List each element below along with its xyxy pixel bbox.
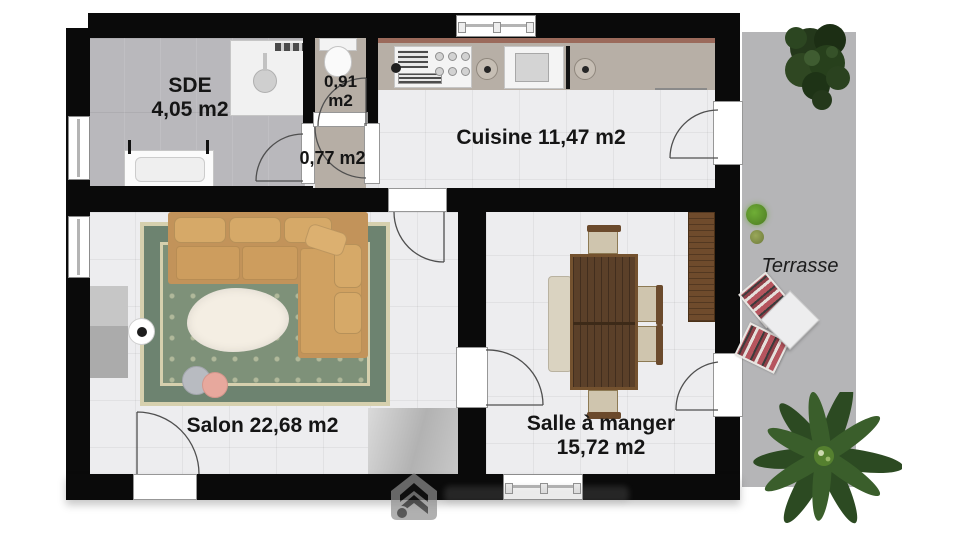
sofa-cushion — [334, 292, 362, 334]
stairs-area — [368, 408, 458, 475]
sink-icon — [476, 58, 498, 80]
stove-grill — [398, 50, 428, 68]
table-divider — [573, 322, 635, 325]
hallway-label: 0,77 m2 — [285, 148, 380, 168]
tv-console-top — [90, 286, 128, 326]
faucet — [206, 140, 209, 154]
sde-label: SDE 4,05 m2 — [120, 74, 260, 121]
wc-door-frame — [313, 112, 368, 127]
top-wall — [88, 13, 740, 38]
stove-knob — [461, 52, 470, 61]
dining-chair — [588, 228, 618, 254]
small-plant-icon — [750, 230, 764, 244]
salle-name: Salle à manger — [498, 412, 704, 436]
wc-area-line2: m2 — [313, 91, 368, 110]
counter-divider — [566, 46, 570, 89]
kitchen-window — [456, 15, 536, 37]
dishwasher-icon — [504, 46, 564, 89]
dining-terrace-door-frame — [713, 353, 743, 417]
stove-burner — [391, 63, 401, 73]
stove-knob — [448, 52, 457, 61]
pouf-pink — [202, 372, 228, 398]
kitchen-dining-wall-right — [447, 188, 740, 212]
watermark-text-smudge — [444, 486, 629, 503]
faucet — [128, 140, 131, 154]
sde-name: SDE — [120, 74, 260, 98]
side-table — [128, 318, 155, 345]
counter-edge-line — [655, 88, 707, 90]
kitchen-salon-door-frame — [388, 188, 447, 212]
sofa-seat — [242, 246, 298, 280]
sde-salon-wall — [66, 186, 313, 212]
entry-door-frame — [133, 474, 197, 500]
kitchen-salon-wall-left — [313, 188, 388, 212]
shower-arm — [263, 53, 267, 71]
washbasin-icon — [124, 150, 214, 187]
basin — [135, 157, 205, 182]
dishwasher-door — [515, 53, 549, 82]
sofa-seat — [176, 246, 240, 280]
salon-dining-door-frame — [456, 347, 488, 408]
salon-label: Salon 22,68 m2 — [160, 414, 365, 438]
sink-drain — [484, 66, 491, 73]
sde-area: 4,05 m2 — [120, 98, 260, 122]
salle-a-manger-label: Salle à manger 15,72 m2 — [498, 412, 704, 459]
salle-area: 15,72 m2 — [498, 436, 704, 460]
floor-plan: SDE 4,05 m2 0,91 m2 0,77 m2 Cuisine 11,4… — [0, 0, 960, 540]
terrasse-label: Terrasse — [745, 255, 855, 277]
dining-table — [570, 254, 638, 390]
sink-icon — [574, 58, 596, 80]
kitchen-counter-edge — [378, 38, 715, 43]
small-plant-icon — [746, 204, 767, 225]
wc-label: 0,91 m2 — [313, 72, 368, 110]
salon-window — [68, 216, 90, 278]
stove-knob — [435, 67, 444, 76]
salon-dining-wall-lower — [458, 406, 486, 474]
sofa-cushion — [229, 217, 281, 243]
sink-drain — [582, 66, 589, 73]
cuisine-label: Cuisine 11,47 m2 — [420, 126, 662, 150]
stove-knob — [448, 67, 457, 76]
salon-dining-wall-upper — [458, 208, 486, 348]
sideboard — [688, 210, 715, 322]
stove-knob — [435, 52, 444, 61]
stove-knob — [461, 67, 470, 76]
wc-area-line1: 0,91 — [313, 72, 368, 91]
right-wall — [715, 28, 740, 500]
dining-bench — [548, 276, 572, 372]
kitchen-terrace-door-frame — [713, 101, 743, 165]
tv-console — [90, 286, 128, 378]
stove-icon — [394, 46, 472, 88]
sde-window — [68, 116, 90, 180]
side-table-center — [137, 327, 147, 337]
sofa-cushion — [174, 217, 226, 243]
